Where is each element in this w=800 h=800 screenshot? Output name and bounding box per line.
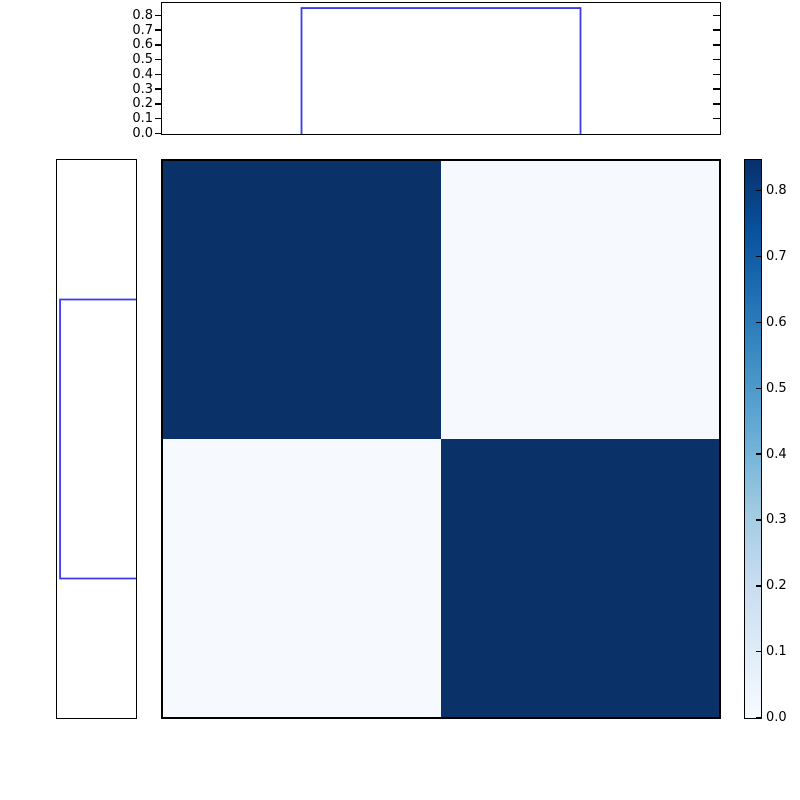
left-step-line-path [60,300,136,579]
y-axis-tick [155,103,161,104]
y-axis-tick-label: 0.0 [120,126,153,141]
heatmap-grid [163,161,719,717]
right-axis-tick [713,59,720,60]
left-step-line [57,160,136,718]
figure-canvas: 0.80.70.60.50.40.30.20.10.00.80.70.60.50… [0,0,800,800]
colorbar-tick-label: 0.6 [766,315,787,330]
y-axis-tick [155,59,161,60]
colorbar-tick-label: 0.7 [766,249,787,264]
colorbar-tick [756,322,761,323]
right-axis-tick [713,15,720,16]
y-axis-tick [155,88,161,89]
right-axis-tick [713,88,720,89]
y-axis-tick [155,29,161,30]
top-marginal-panel [161,2,721,135]
colorbar-tick [756,256,761,257]
colorbar-tick [756,388,761,389]
y-axis-tick-label: 0.3 [120,82,153,97]
y-axis-tick-label: 0.8 [120,8,153,23]
y-axis-tick-label: 0.6 [120,37,153,52]
colorbar-tick [756,717,761,718]
right-axis-tick [713,118,720,119]
colorbar-tick-label: 0.1 [766,644,787,659]
heatmap-cell [163,439,441,717]
y-axis-tick-label: 0.2 [120,96,153,111]
heatmap-cell [441,439,719,717]
heatmap-cell [441,161,719,439]
y-axis-tick-label: 0.7 [120,23,153,38]
colorbar-tick-label: 0.3 [766,512,787,527]
y-axis-tick [155,74,161,75]
colorbar-tick [756,651,761,652]
colorbar-tick [756,519,761,520]
colorbar-tick [756,453,761,454]
left-marginal-panel [56,159,137,719]
y-axis-tick [155,15,161,16]
y-axis-tick-label: 0.1 [120,111,153,126]
y-axis-tick [155,44,161,45]
heatmap-panel [161,159,721,719]
right-axis-tick [713,29,720,30]
colorbar-tick-label: 0.0 [766,710,787,725]
colorbar-tick-label: 0.5 [766,381,787,396]
right-axis-tick [713,103,720,104]
colorbar-tick-label: 0.2 [766,578,787,593]
right-axis-tick [713,74,720,75]
y-axis-tick [155,118,161,119]
top-step-line [162,3,720,134]
colorbar-tick-label: 0.8 [766,183,787,198]
heatmap-cell [163,161,441,439]
y-axis-tick-label: 0.4 [120,67,153,82]
top-step-line-path [302,8,581,134]
y-axis-tick [155,133,161,134]
colorbar-tick [756,585,761,586]
right-axis-tick [713,44,720,45]
colorbar-tick [756,190,761,191]
colorbar-tick-label: 0.4 [766,447,787,462]
y-axis-tick-label: 0.5 [120,52,153,67]
colorbar [744,159,762,719]
